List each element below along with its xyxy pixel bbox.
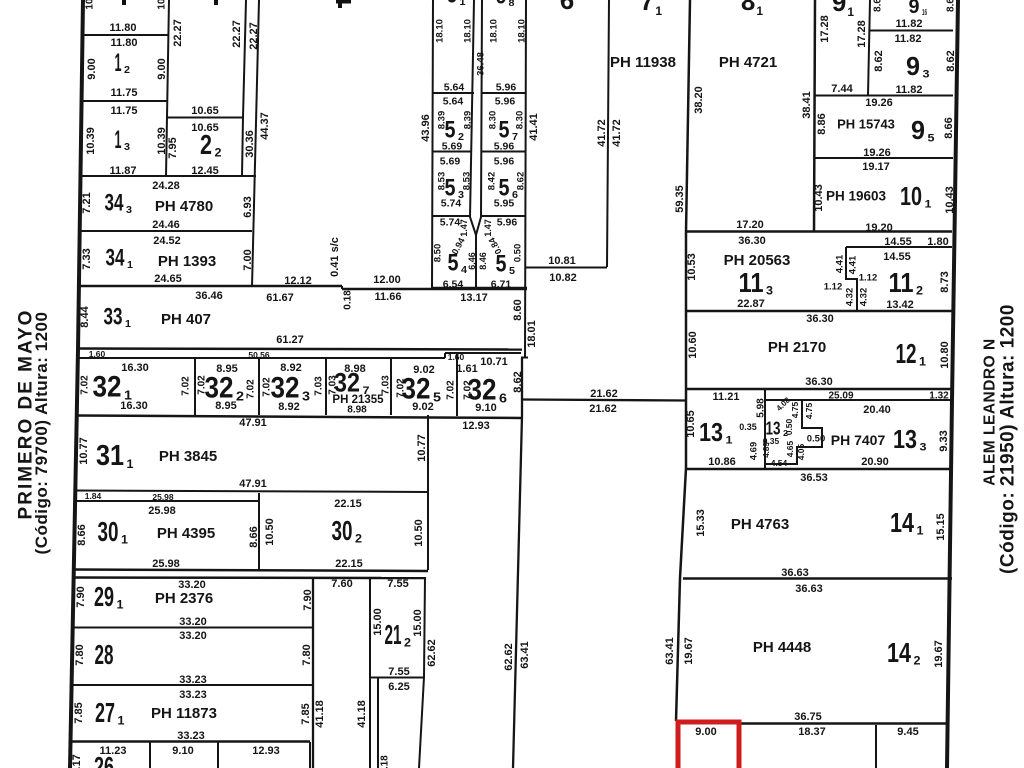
svg-text:5.96: 5.96 bbox=[494, 156, 515, 168]
svg-text:27: 27 bbox=[95, 697, 115, 728]
svg-text:PH 407: PH 407 bbox=[161, 311, 211, 328]
svg-text:(Código: 21950) Altura: 1200: (Código: 21950) Altura: 1200 bbox=[998, 304, 1019, 574]
svg-text:10: 10 bbox=[900, 181, 922, 211]
svg-text:4.65: 4.65 bbox=[785, 440, 795, 457]
svg-text:4.69: 4.69 bbox=[748, 442, 759, 461]
svg-text:24.52: 24.52 bbox=[153, 235, 181, 247]
svg-text:15.00: 15.00 bbox=[372, 608, 384, 636]
svg-text:3: 3 bbox=[923, 69, 930, 81]
svg-text:7.02: 7.02 bbox=[463, 380, 474, 400]
svg-text:41.72: 41.72 bbox=[596, 119, 608, 147]
svg-text:PH 1393: PH 1393 bbox=[158, 253, 216, 270]
svg-text:14: 14 bbox=[890, 507, 914, 538]
svg-text:16.30: 16.30 bbox=[121, 362, 149, 374]
svg-text:22.15: 22.15 bbox=[335, 558, 363, 570]
svg-text:7.02: 7.02 bbox=[246, 379, 257, 399]
svg-text:3: 3 bbox=[920, 442, 927, 454]
svg-text:8.39: 8.39 bbox=[462, 111, 473, 130]
svg-text:7.55: 7.55 bbox=[387, 578, 408, 590]
svg-text:5.98: 5.98 bbox=[756, 398, 767, 418]
svg-text:1.60: 1.60 bbox=[89, 349, 106, 359]
svg-text:21: 21 bbox=[385, 619, 402, 650]
svg-text:2: 2 bbox=[916, 284, 923, 298]
svg-text:1: 1 bbox=[919, 355, 926, 369]
svg-text:1.47: 1.47 bbox=[483, 219, 493, 237]
svg-text:33.20: 33.20 bbox=[179, 616, 207, 628]
svg-text:1: 1 bbox=[127, 260, 133, 271]
svg-text:8.62: 8.62 bbox=[873, 50, 885, 71]
svg-text:0.50: 0.50 bbox=[807, 433, 826, 444]
svg-text:7.55: 7.55 bbox=[388, 666, 409, 678]
svg-text:6.25: 6.25 bbox=[388, 681, 409, 693]
svg-text:18.01: 18.01 bbox=[526, 320, 538, 348]
svg-text:3: 3 bbox=[124, 142, 130, 153]
svg-text:1: 1 bbox=[117, 598, 124, 612]
svg-text:ALEM LEANDRO N: ALEM LEANDRO N bbox=[981, 338, 998, 485]
svg-text:18.10: 18.10 bbox=[434, 19, 445, 43]
svg-text:30: 30 bbox=[332, 515, 353, 546]
svg-text:10.80: 10.80 bbox=[939, 341, 951, 369]
svg-text:12.12: 12.12 bbox=[284, 275, 312, 287]
svg-text:0.18: 0.18 bbox=[343, 290, 354, 310]
svg-text:25.98: 25.98 bbox=[152, 492, 174, 502]
svg-text:9.00: 9.00 bbox=[156, 58, 168, 79]
svg-text:4.32: 4.32 bbox=[858, 288, 869, 307]
svg-text:15.33: 15.33 bbox=[695, 509, 707, 537]
svg-text:4.41: 4.41 bbox=[847, 255, 858, 274]
svg-text:8.30: 8.30 bbox=[514, 111, 525, 130]
svg-text:7.00: 7.00 bbox=[242, 249, 254, 270]
svg-text:11.21: 11.21 bbox=[713, 391, 740, 403]
svg-text:5.64: 5.64 bbox=[444, 82, 465, 94]
svg-text:3: 3 bbox=[302, 389, 310, 404]
svg-text:8.62: 8.62 bbox=[945, 50, 957, 71]
svg-text:14.55: 14.55 bbox=[884, 236, 912, 248]
svg-text:33.23: 33.23 bbox=[179, 689, 207, 701]
svg-text:36.30: 36.30 bbox=[738, 235, 766, 247]
svg-text:11: 11 bbox=[889, 267, 914, 298]
svg-text:6.54: 6.54 bbox=[443, 279, 464, 291]
svg-text:18.37: 18.37 bbox=[798, 726, 826, 738]
svg-text:29: 29 bbox=[94, 581, 114, 612]
svg-text:9: 9 bbox=[909, 0, 920, 18]
svg-text:11.82: 11.82 bbox=[895, 33, 922, 45]
svg-text:11.80: 11.80 bbox=[111, 37, 138, 49]
svg-text:36.46: 36.46 bbox=[195, 290, 223, 302]
svg-text:22.27: 22.27 bbox=[172, 19, 184, 47]
svg-text:11.82: 11.82 bbox=[896, 18, 923, 30]
svg-text:1: 1 bbox=[917, 524, 924, 538]
svg-text:4.75: 4.75 bbox=[804, 402, 814, 419]
svg-text:10.65: 10.65 bbox=[191, 105, 219, 117]
svg-text:10.50: 10.50 bbox=[264, 518, 276, 546]
svg-text:5: 5 bbox=[928, 133, 935, 145]
svg-text:1: 1 bbox=[115, 126, 122, 154]
svg-text:36.48: 36.48 bbox=[475, 52, 486, 76]
svg-text:12: 12 bbox=[896, 338, 917, 369]
svg-text:22.87: 22.87 bbox=[737, 298, 765, 310]
svg-text:63.41: 63.41 bbox=[664, 637, 676, 665]
svg-text:12.00: 12.00 bbox=[373, 274, 401, 286]
svg-text:10.81: 10.81 bbox=[548, 255, 576, 267]
svg-text:7.80: 7.80 bbox=[74, 644, 86, 665]
svg-text:5.95: 5.95 bbox=[494, 198, 515, 210]
svg-text:1: 1 bbox=[127, 457, 134, 471]
svg-text:5.74: 5.74 bbox=[440, 217, 461, 229]
svg-text:31: 31 bbox=[96, 440, 124, 472]
svg-text:13.42: 13.42 bbox=[886, 299, 914, 311]
svg-text:8.46: 8.46 bbox=[478, 252, 488, 270]
svg-text:16: 16 bbox=[922, 8, 927, 17]
svg-text:13: 13 bbox=[893, 424, 917, 454]
svg-text:33.23: 33.23 bbox=[177, 730, 205, 742]
svg-text:10.60: 10.60 bbox=[687, 331, 699, 359]
svg-text:9.00: 9.00 bbox=[86, 58, 98, 79]
svg-text:PH 3845: PH 3845 bbox=[159, 448, 217, 465]
svg-text:11.75: 11.75 bbox=[111, 87, 138, 99]
svg-text:17.28: 17.28 bbox=[819, 15, 831, 43]
svg-text:5.64: 5.64 bbox=[443, 96, 464, 108]
svg-text:3.18: 3.18 bbox=[380, 755, 391, 768]
svg-text:5.69: 5.69 bbox=[440, 156, 461, 168]
svg-text:36.30: 36.30 bbox=[806, 313, 834, 325]
svg-text:PH 4395: PH 4395 bbox=[157, 525, 215, 542]
svg-text:8.42: 8.42 bbox=[486, 172, 497, 191]
svg-text:41.72: 41.72 bbox=[611, 119, 623, 147]
svg-text:10.50: 10.50 bbox=[413, 519, 425, 547]
svg-text:1.84: 1.84 bbox=[85, 491, 102, 501]
svg-text:(Código: 79700) Altura: 1200: (Código: 79700) Altura: 1200 bbox=[32, 312, 51, 555]
svg-text:2: 2 bbox=[124, 65, 130, 76]
svg-text:41.18: 41.18 bbox=[314, 700, 326, 728]
svg-text:PH 11938: PH 11938 bbox=[610, 54, 676, 71]
svg-text:5.96: 5.96 bbox=[497, 217, 518, 229]
svg-text:19.26: 19.26 bbox=[865, 97, 893, 109]
svg-text:32: 32 bbox=[93, 371, 122, 404]
svg-text:10.43: 10.43 bbox=[813, 184, 825, 212]
svg-text:0.50: 0.50 bbox=[784, 418, 794, 435]
svg-text:7.02: 7.02 bbox=[396, 378, 407, 398]
svg-text:1.47: 1.47 bbox=[459, 219, 469, 237]
svg-text:10.77: 10.77 bbox=[416, 434, 428, 462]
svg-text:38.20: 38.20 bbox=[693, 86, 705, 114]
svg-text:20.40: 20.40 bbox=[863, 404, 891, 416]
svg-text:9.45: 9.45 bbox=[897, 726, 918, 738]
svg-text:41.18: 41.18 bbox=[356, 700, 368, 728]
svg-text:14.55: 14.55 bbox=[883, 251, 911, 263]
svg-text:7.17: 7.17 bbox=[71, 754, 83, 768]
svg-text:11.66: 11.66 bbox=[375, 291, 402, 303]
svg-text:6.71: 6.71 bbox=[491, 279, 512, 291]
svg-text:7.33: 7.33 bbox=[81, 248, 93, 269]
svg-text:1: 1 bbox=[460, 0, 466, 7]
svg-text:PH 19603: PH 19603 bbox=[826, 189, 887, 204]
svg-text:6.93: 6.93 bbox=[242, 196, 254, 217]
svg-text:33.20: 33.20 bbox=[179, 630, 207, 642]
svg-text:33: 33 bbox=[104, 303, 123, 330]
svg-text:41.41: 41.41 bbox=[528, 113, 540, 141]
svg-text:1: 1 bbox=[115, 49, 122, 77]
svg-text:5.96: 5.96 bbox=[494, 141, 515, 153]
svg-text:1: 1 bbox=[118, 714, 125, 728]
svg-text:PH 2170: PH 2170 bbox=[768, 339, 826, 356]
svg-text:63.41: 63.41 bbox=[519, 641, 531, 669]
svg-text:1: 1 bbox=[125, 319, 131, 330]
svg-text:5: 5 bbox=[433, 390, 441, 405]
svg-text:9.10: 9.10 bbox=[172, 745, 193, 757]
svg-text:18.10: 18.10 bbox=[488, 19, 499, 43]
svg-text:36.53: 36.53 bbox=[800, 472, 828, 484]
svg-text:22.15: 22.15 bbox=[334, 498, 362, 510]
svg-text:24.46: 24.46 bbox=[152, 219, 180, 231]
svg-text:16.30: 16.30 bbox=[120, 400, 148, 412]
svg-text:9.33: 9.33 bbox=[938, 430, 950, 451]
svg-text:PH 4721: PH 4721 bbox=[719, 54, 777, 71]
svg-text:9.00: 9.00 bbox=[695, 726, 716, 738]
svg-text:15.00: 15.00 bbox=[412, 609, 424, 637]
svg-text:2: 2 bbox=[404, 636, 411, 650]
svg-text:PH 4780: PH 4780 bbox=[155, 198, 213, 215]
svg-text:5.96: 5.96 bbox=[496, 82, 517, 94]
svg-text:0.41 s/c: 0.41 s/c bbox=[329, 237, 341, 277]
svg-text:PH 4763: PH 4763 bbox=[731, 516, 789, 533]
svg-text:9: 9 bbox=[911, 115, 925, 145]
svg-text:10.86: 10.86 bbox=[708, 456, 736, 468]
svg-text:PH 15743: PH 15743 bbox=[837, 117, 895, 132]
svg-text:7.85: 7.85 bbox=[73, 702, 85, 723]
svg-text:24.65: 24.65 bbox=[154, 273, 182, 285]
svg-text:22.27: 22.27 bbox=[231, 20, 243, 48]
svg-text:36.63: 36.63 bbox=[781, 567, 809, 579]
svg-text:9: 9 bbox=[906, 51, 920, 81]
svg-text:7.02: 7.02 bbox=[80, 375, 91, 395]
svg-text:20.90: 20.90 bbox=[861, 456, 889, 468]
svg-text:8.44: 8.44 bbox=[79, 305, 91, 327]
svg-text:1.12: 1.12 bbox=[859, 272, 878, 283]
svg-text:14: 14 bbox=[887, 637, 911, 668]
svg-text:12.93: 12.93 bbox=[252, 745, 280, 757]
svg-text:PH 11873: PH 11873 bbox=[151, 705, 217, 722]
svg-text:4.05: 4.05 bbox=[796, 443, 806, 460]
svg-text:5: 5 bbox=[445, 116, 456, 143]
svg-text:7.44: 7.44 bbox=[831, 83, 853, 95]
svg-text:12.45: 12.45 bbox=[191, 165, 219, 177]
svg-text:9.10: 9.10 bbox=[475, 402, 496, 414]
svg-text:33.20: 33.20 bbox=[178, 579, 206, 591]
svg-text:10.39: 10.39 bbox=[85, 127, 97, 155]
svg-text:7.02: 7.02 bbox=[446, 380, 457, 400]
svg-text:44.37: 44.37 bbox=[259, 112, 271, 140]
svg-text:7.03: 7.03 bbox=[328, 375, 339, 395]
svg-text:30.36: 30.36 bbox=[244, 130, 256, 158]
svg-text:36.63: 36.63 bbox=[795, 583, 823, 595]
svg-text:5: 5 bbox=[496, 0, 506, 9]
svg-text:18.10: 18.10 bbox=[516, 19, 527, 43]
svg-text:18.10: 18.10 bbox=[462, 19, 473, 43]
svg-text:13: 13 bbox=[699, 417, 723, 447]
svg-text:0.35: 0.35 bbox=[739, 422, 757, 432]
svg-text:PH 4448: PH 4448 bbox=[753, 639, 811, 656]
svg-text:10.82: 10.82 bbox=[549, 272, 577, 284]
svg-text:28: 28 bbox=[95, 639, 114, 670]
svg-text:7.95: 7.95 bbox=[167, 137, 179, 158]
svg-text:25.98: 25.98 bbox=[152, 558, 180, 570]
svg-text:7.85: 7.85 bbox=[300, 703, 312, 724]
svg-text:43.96: 43.96 bbox=[420, 114, 432, 142]
svg-text:61.67: 61.67 bbox=[266, 292, 294, 304]
svg-text:3: 3 bbox=[766, 284, 773, 298]
svg-text:2: 2 bbox=[215, 146, 222, 160]
svg-text:8.66: 8.66 bbox=[76, 524, 88, 545]
svg-text:25.98: 25.98 bbox=[148, 505, 176, 517]
svg-text:32: 32 bbox=[271, 372, 300, 405]
svg-text:1.80: 1.80 bbox=[927, 236, 948, 248]
svg-text:15.15: 15.15 bbox=[935, 513, 947, 541]
svg-text:8.66: 8.66 bbox=[943, 117, 955, 138]
svg-text:7.03: 7.03 bbox=[314, 376, 325, 396]
svg-text:59.35: 59.35 bbox=[674, 185, 686, 213]
svg-text:8.53: 8.53 bbox=[461, 172, 472, 191]
svg-text:10.53: 10.53 bbox=[686, 253, 698, 281]
svg-text:PH 7407: PH 7407 bbox=[831, 432, 886, 448]
svg-text:36.75: 36.75 bbox=[794, 711, 822, 723]
svg-text:2: 2 bbox=[914, 654, 921, 668]
svg-text:5: 5 bbox=[499, 116, 510, 143]
svg-text:10: 10 bbox=[157, 0, 168, 10]
svg-text:11.80: 11.80 bbox=[110, 22, 137, 34]
svg-text:26: 26 bbox=[94, 751, 114, 768]
svg-text:8.98: 8.98 bbox=[347, 405, 367, 416]
svg-text:47.91: 47.91 bbox=[239, 417, 267, 429]
svg-text:6: 6 bbox=[499, 391, 507, 406]
svg-text:21.62: 21.62 bbox=[590, 388, 618, 400]
svg-text:24.28: 24.28 bbox=[152, 180, 180, 192]
svg-text:7.80: 7.80 bbox=[301, 644, 313, 665]
svg-text:36.30: 36.30 bbox=[805, 376, 833, 388]
svg-text:8.73: 8.73 bbox=[939, 271, 951, 292]
svg-text:8.6: 8.6 bbox=[946, 0, 957, 12]
svg-text:1.12: 1.12 bbox=[824, 281, 843, 292]
svg-text:11.75: 11.75 bbox=[111, 105, 138, 117]
svg-text:17.28: 17.28 bbox=[856, 20, 868, 48]
svg-text:8.6: 8.6 bbox=[873, 0, 884, 12]
svg-text:7.21: 7.21 bbox=[81, 192, 93, 213]
svg-text:19.67: 19.67 bbox=[683, 637, 695, 665]
svg-text:7.90: 7.90 bbox=[75, 586, 87, 607]
svg-text:7.02: 7.02 bbox=[197, 375, 208, 395]
svg-text:10.77: 10.77 bbox=[78, 437, 90, 465]
svg-text:4.89: 4.89 bbox=[762, 442, 771, 458]
svg-text:6: 6 bbox=[560, 0, 574, 15]
svg-text:0.50: 0.50 bbox=[512, 244, 523, 263]
svg-text:7.03: 7.03 bbox=[381, 375, 392, 395]
svg-text:5.69: 5.69 bbox=[442, 141, 463, 153]
svg-text:8.30: 8.30 bbox=[487, 111, 498, 130]
svg-text:6.46: 6.46 bbox=[467, 252, 477, 270]
svg-text:8.86: 8.86 bbox=[816, 113, 828, 134]
svg-text:19.17: 19.17 bbox=[862, 161, 890, 173]
svg-text:8.95: 8.95 bbox=[215, 400, 236, 412]
svg-text:8.92: 8.92 bbox=[278, 401, 299, 413]
svg-text:38.41: 38.41 bbox=[801, 91, 813, 119]
svg-text:21.62: 21.62 bbox=[589, 403, 617, 415]
svg-text:7.60: 7.60 bbox=[331, 578, 352, 590]
svg-text:8.50: 8.50 bbox=[432, 244, 443, 263]
svg-text:1: 1 bbox=[925, 199, 932, 211]
svg-text:10.71: 10.71 bbox=[480, 356, 508, 368]
svg-text:34: 34 bbox=[105, 189, 124, 216]
svg-text:7.02: 7.02 bbox=[181, 376, 192, 396]
svg-text:61.27: 61.27 bbox=[276, 334, 304, 346]
svg-text:7.02: 7.02 bbox=[262, 377, 273, 397]
svg-text:17.20: 17.20 bbox=[736, 219, 764, 231]
svg-text:1: 1 bbox=[121, 533, 128, 547]
svg-text:11.82: 11.82 bbox=[896, 84, 923, 96]
svg-text:12.93: 12.93 bbox=[462, 420, 490, 432]
svg-text:PH 2376: PH 2376 bbox=[155, 590, 213, 607]
svg-text:62.62: 62.62 bbox=[426, 639, 438, 667]
svg-text:30: 30 bbox=[98, 516, 119, 547]
svg-text:10: 10 bbox=[85, 0, 96, 10]
svg-text:11: 11 bbox=[739, 267, 764, 298]
svg-text:2: 2 bbox=[355, 532, 362, 546]
svg-text:5.74: 5.74 bbox=[441, 198, 462, 210]
svg-text:8.62: 8.62 bbox=[515, 172, 526, 191]
svg-text:2: 2 bbox=[236, 389, 244, 404]
svg-text:4.41: 4.41 bbox=[834, 254, 845, 273]
svg-text:62.62: 62.62 bbox=[503, 643, 515, 671]
svg-text:2: 2 bbox=[200, 129, 212, 160]
svg-text:1: 1 bbox=[726, 435, 733, 447]
svg-text:19.67: 19.67 bbox=[933, 640, 945, 668]
svg-text:10.43: 10.43 bbox=[944, 186, 956, 214]
svg-text:5.96: 5.96 bbox=[495, 96, 516, 108]
svg-text:4.75: 4.75 bbox=[790, 401, 800, 418]
svg-text:8.60: 8.60 bbox=[512, 299, 524, 320]
svg-text:47.91: 47.91 bbox=[239, 478, 267, 490]
svg-text:4.32: 4.32 bbox=[844, 288, 855, 307]
svg-text:9.02: 9.02 bbox=[412, 401, 433, 413]
svg-text:13.17: 13.17 bbox=[460, 292, 488, 304]
svg-text:5: 5 bbox=[509, 266, 515, 277]
svg-text:5: 5 bbox=[447, 0, 457, 8]
svg-text:4.54: 4.54 bbox=[771, 458, 788, 468]
svg-text:3: 3 bbox=[126, 205, 132, 216]
svg-text:8: 8 bbox=[509, 0, 515, 8]
svg-text:34: 34 bbox=[106, 244, 125, 271]
